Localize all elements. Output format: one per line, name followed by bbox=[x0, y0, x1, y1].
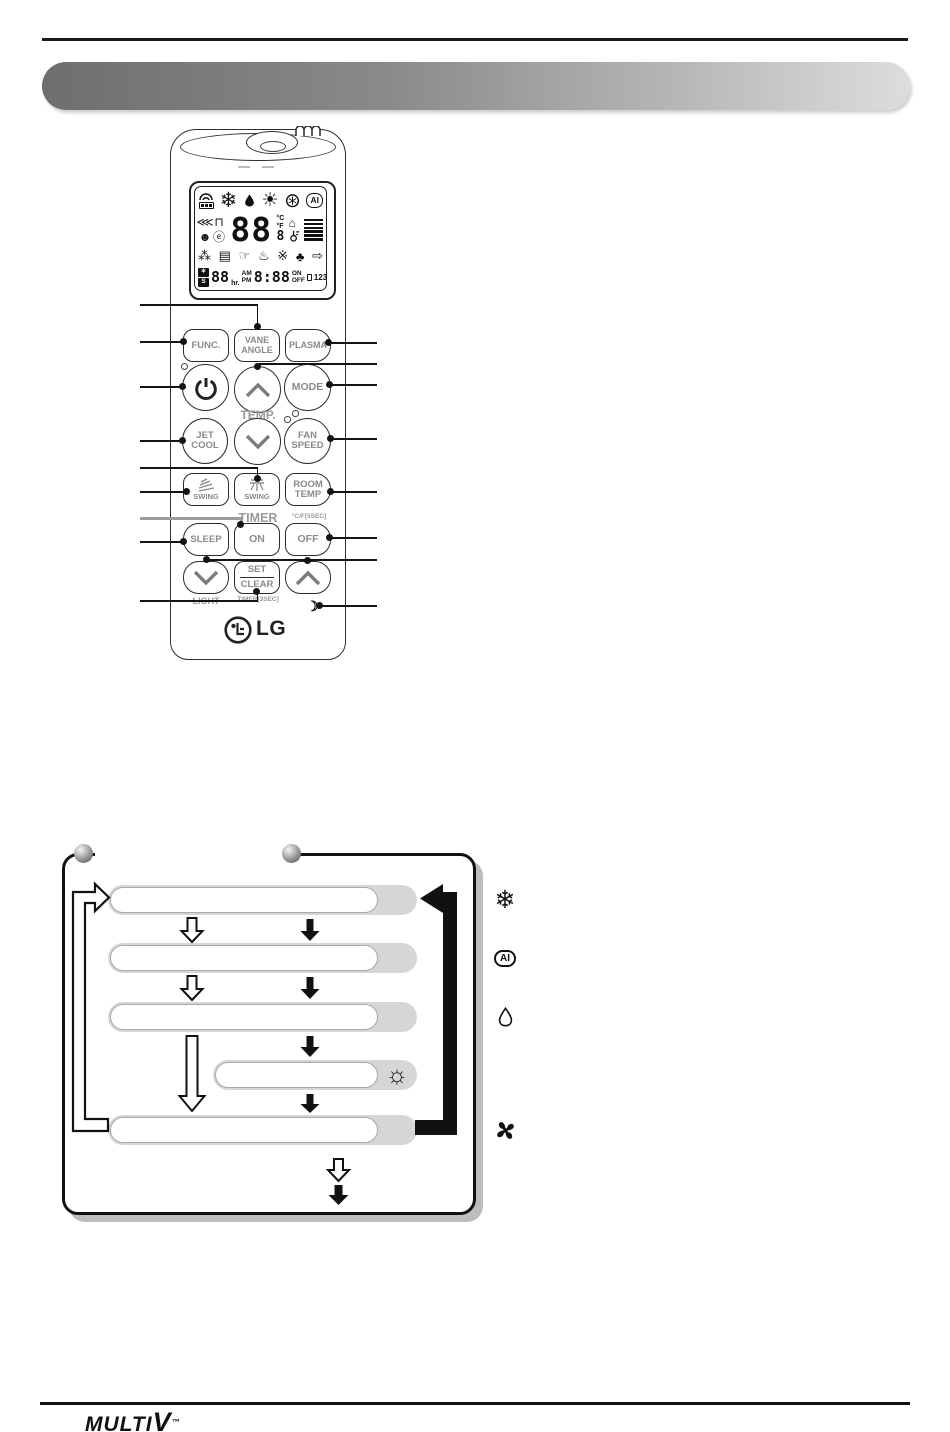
temp-unit-block: °C °F 8 bbox=[276, 215, 284, 243]
thermometer-icon bbox=[289, 229, 300, 242]
callout-dot-timer-on bbox=[237, 521, 244, 528]
heater-icon: ♨ bbox=[258, 248, 270, 264]
fan-speed-button[interactable]: FAN SPEED bbox=[284, 418, 331, 464]
signal-icon bbox=[198, 193, 214, 209]
vane-icon: ⊓ bbox=[214, 216, 223, 228]
callout-line-room-temp bbox=[332, 491, 377, 493]
person-icon: ☻ bbox=[199, 231, 212, 243]
decor-dash bbox=[238, 166, 250, 168]
callout-dot-set-clear bbox=[253, 588, 260, 595]
forest-icon: ♣ bbox=[296, 249, 305, 264]
panel-top-gap bbox=[95, 849, 285, 858]
dry-mode-icon bbox=[485, 1002, 525, 1032]
callout-dot-mode bbox=[326, 381, 333, 388]
lcd-option-row: ⁂ ▤ ☞ ♨ ※ ♣ ⇨ bbox=[198, 248, 323, 264]
callout-line-temp-up bbox=[259, 363, 377, 365]
filled-arrow-2 bbox=[301, 977, 320, 999]
cf-5sec-label: °C/F[5SEC] bbox=[283, 513, 335, 520]
chevron-up-icon bbox=[294, 570, 322, 586]
callout-line-mode bbox=[331, 384, 377, 386]
lcd-mode-row: ❄ ☀ ⊛ AI bbox=[198, 190, 323, 211]
temp-down-button[interactable] bbox=[234, 418, 281, 465]
callout-dot-time-up bbox=[304, 557, 311, 564]
timer-flag-icons: ✶ S bbox=[198, 268, 209, 287]
lcd-temp-row: ⋘ ⊓ ☻ ⓔ 88 °C °F 8 ⌂ bbox=[198, 215, 323, 245]
filter-door-icon: ▤ bbox=[219, 248, 231, 264]
sleep-button[interactable]: SLEEP bbox=[183, 523, 229, 556]
vane-angle-button[interactable]: VANE ANGLE bbox=[234, 329, 280, 362]
fan-indicator-dot2 bbox=[292, 410, 299, 417]
manual-page: ❄ ☀ ⊛ AI ⋘ ⊓ ☻ ⓔ 88 °C °F 8 ⌂ bbox=[0, 0, 950, 1432]
energy-plug-icon: ⓔ bbox=[213, 231, 225, 243]
sub-digit: 8 bbox=[276, 230, 284, 244]
fan-mode-icon bbox=[485, 1115, 525, 1145]
fan-mode-icon: ⊛ bbox=[284, 191, 301, 211]
set-clear-divider bbox=[240, 577, 274, 578]
callout-dot-power bbox=[179, 383, 186, 390]
decor-dash bbox=[262, 166, 274, 168]
callout-line-plasma bbox=[330, 342, 377, 344]
time-up-button[interactable] bbox=[285, 561, 331, 594]
onoff-block: ON OFF bbox=[292, 270, 305, 284]
swing-spray-icon: ⋘ bbox=[196, 216, 213, 228]
callout-dot-room-temp bbox=[327, 488, 334, 495]
on-label: ON bbox=[292, 270, 305, 277]
chevron-down-icon bbox=[192, 570, 220, 586]
plasma-button[interactable]: PLASMA bbox=[285, 329, 331, 362]
hollow-arrow-1 bbox=[182, 918, 203, 942]
callout-dot-fan-speed bbox=[327, 435, 334, 442]
pm-label: PM bbox=[242, 277, 252, 284]
ampm-block: AM PM bbox=[242, 270, 252, 284]
heat-mode-icon: ☀ bbox=[261, 191, 278, 210]
callout-dot-func bbox=[180, 338, 187, 345]
loop-arrow-left bbox=[73, 884, 109, 1131]
callout-line-reset bbox=[321, 605, 377, 607]
bottom-filled-arrow bbox=[329, 1185, 349, 1205]
callout-line-swing1 bbox=[140, 491, 188, 493]
sleep-flag-icon: S bbox=[198, 278, 209, 287]
callout-line-fan-speed bbox=[332, 438, 377, 440]
callout-dot-jet-cool bbox=[179, 437, 186, 444]
bottom-hollow-arrow bbox=[328, 1159, 349, 1181]
callout-dot-time-down bbox=[203, 556, 210, 563]
callout-line-vane-angle bbox=[140, 304, 258, 306]
am-label: AM bbox=[242, 270, 252, 277]
top-rule bbox=[42, 38, 908, 41]
callout-line-jet-cool bbox=[140, 440, 184, 442]
callout-line-time-buttons bbox=[207, 559, 377, 561]
callout-dot-sleep bbox=[180, 538, 187, 545]
ai-mode-icon: AI bbox=[306, 193, 323, 207]
swing-spray-icon bbox=[196, 478, 216, 492]
callout-line-timer-on bbox=[140, 517, 242, 520]
filled-arrow-4 bbox=[301, 1094, 320, 1113]
time-down-button[interactable] bbox=[183, 561, 229, 594]
off-label: OFF bbox=[292, 277, 305, 284]
hour-unit: hr. bbox=[231, 280, 240, 287]
hollow-arrow-2 bbox=[182, 976, 203, 1000]
humidify-icon: ⁂ bbox=[198, 248, 211, 264]
section-banner bbox=[42, 62, 910, 110]
battery2-icon bbox=[307, 274, 312, 281]
dry-mode-icon bbox=[243, 192, 256, 209]
celsius-label: °C bbox=[276, 215, 284, 222]
temperature-digits: 88 bbox=[230, 215, 272, 245]
ridge-marks bbox=[294, 126, 330, 138]
airflow-arrow-icon: ⇨ bbox=[312, 248, 323, 264]
callout-line-timer-off bbox=[331, 537, 377, 539]
power-button[interactable] bbox=[182, 364, 229, 411]
lcd-display-inner: ❄ ☀ ⊛ AI ⋘ ⊓ ☻ ⓔ 88 °C °F 8 ⌂ bbox=[194, 186, 327, 291]
callout-dot-swing2 bbox=[254, 475, 261, 482]
room-temp-button[interactable]: ROOM TEMP bbox=[285, 473, 331, 506]
house-icon: ⌂ bbox=[289, 217, 296, 230]
multi-v-logo: MULTIV™ bbox=[85, 1407, 345, 1432]
plasma-ion-icon: ※ bbox=[277, 248, 288, 264]
temp-up-button[interactable] bbox=[234, 366, 281, 413]
mode-cycle-arrows bbox=[62, 853, 476, 1215]
power-icon bbox=[193, 375, 219, 401]
chevron-up-icon bbox=[244, 382, 272, 398]
callout-dot-reset bbox=[316, 602, 323, 609]
callout-line-sleep bbox=[140, 541, 185, 543]
cool-mode-icon: ❄ bbox=[220, 190, 238, 211]
callout-dot-plasma bbox=[325, 339, 332, 346]
callout-dot-temp-up bbox=[254, 363, 261, 370]
callout-dot-swing1 bbox=[183, 488, 190, 495]
callout-sphere-right bbox=[282, 844, 301, 863]
auto-clean-icon: ☞ bbox=[239, 248, 251, 264]
callout-line-func bbox=[140, 341, 185, 343]
callout-line-set-clear bbox=[140, 600, 258, 602]
house-thermo-block: ⌂ bbox=[289, 217, 300, 243]
callout-dot-timer-off bbox=[326, 534, 333, 541]
cool-mode-icon: ❄ bbox=[485, 885, 525, 915]
loop-arrow-right bbox=[415, 884, 457, 1135]
timer-off-button[interactable]: OFF bbox=[285, 523, 331, 556]
power-indicator-dot bbox=[181, 363, 188, 370]
lcd-function-icons: ⋘ ⊓ ☻ ⓔ bbox=[198, 215, 226, 245]
timer-hour-digits: 88 bbox=[211, 268, 229, 286]
footer-rule bbox=[40, 1402, 910, 1405]
ir-lens-inner bbox=[260, 141, 286, 152]
jet-cool-button[interactable]: JET COOL bbox=[182, 418, 228, 464]
ai-mode-icon: AI bbox=[485, 943, 525, 973]
hollow-arrow-long bbox=[180, 1036, 205, 1111]
callout-line-power bbox=[140, 386, 184, 388]
lg-logo-icon bbox=[223, 615, 253, 645]
mode-button[interactable]: MODE bbox=[284, 364, 331, 411]
fan-speed-bars bbox=[304, 219, 323, 241]
fan-indicator-dot1 bbox=[284, 416, 291, 423]
timer-numbers: 123 bbox=[314, 273, 327, 282]
clock-digits: 8:88 bbox=[254, 268, 290, 286]
lcd-timer-row: ✶ S 88 hr. AM PM 8:88 ON OFF 123 bbox=[198, 268, 323, 287]
filled-arrow-3 bbox=[301, 1036, 320, 1057]
callout-dot-vane-angle bbox=[254, 323, 261, 330]
filled-arrow-1 bbox=[301, 919, 320, 941]
chevron-down-icon bbox=[244, 434, 272, 450]
func-button[interactable]: FUNC. bbox=[183, 329, 229, 362]
battery-icon bbox=[199, 202, 214, 209]
callout-sphere-left bbox=[74, 844, 93, 863]
swing-left-right-button[interactable]: SWING bbox=[183, 473, 229, 506]
lg-logo-text: LG bbox=[256, 617, 286, 641]
auto-flag-icon: ✶ bbox=[198, 268, 209, 277]
callout-line-swing2 bbox=[140, 467, 258, 469]
